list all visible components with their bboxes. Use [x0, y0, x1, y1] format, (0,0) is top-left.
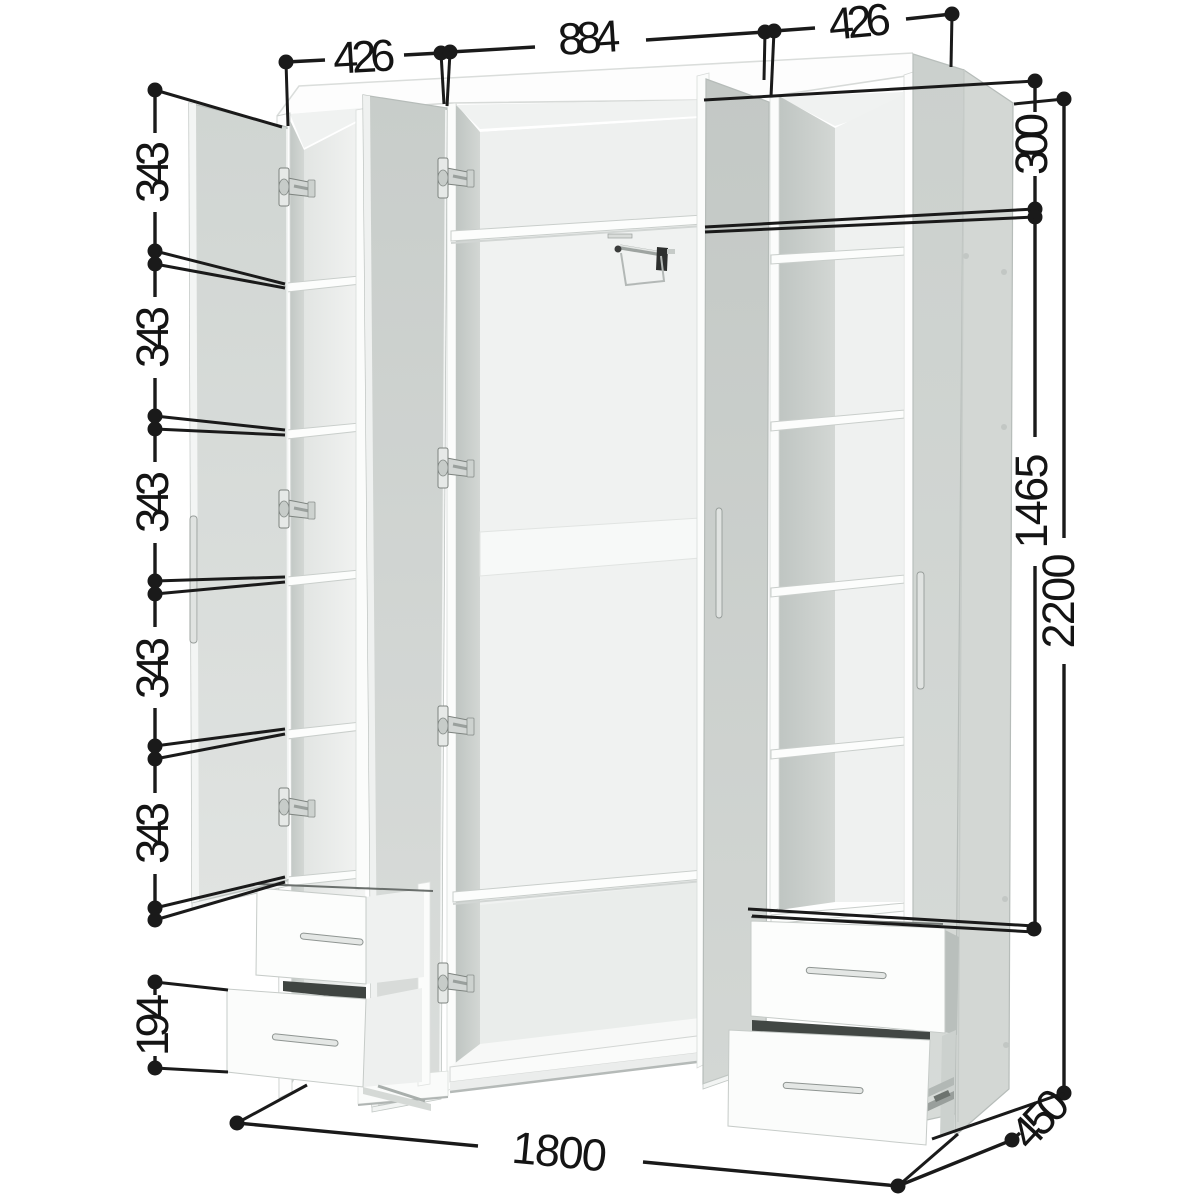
svg-text:884: 884: [556, 10, 621, 65]
svg-text:2200: 2200: [1033, 554, 1084, 649]
svg-text:343: 343: [127, 802, 178, 864]
svg-text:300: 300: [1006, 113, 1057, 175]
svg-text:1800: 1800: [510, 1122, 609, 1182]
svg-text:343: 343: [127, 637, 178, 699]
svg-text:343: 343: [127, 141, 178, 203]
svg-text:194: 194: [127, 994, 178, 1056]
svg-text:426: 426: [826, 0, 893, 50]
svg-text:343: 343: [127, 471, 178, 533]
svg-text:343: 343: [127, 306, 178, 368]
svg-text:426: 426: [332, 29, 397, 83]
svg-text:1465: 1465: [1006, 454, 1057, 549]
